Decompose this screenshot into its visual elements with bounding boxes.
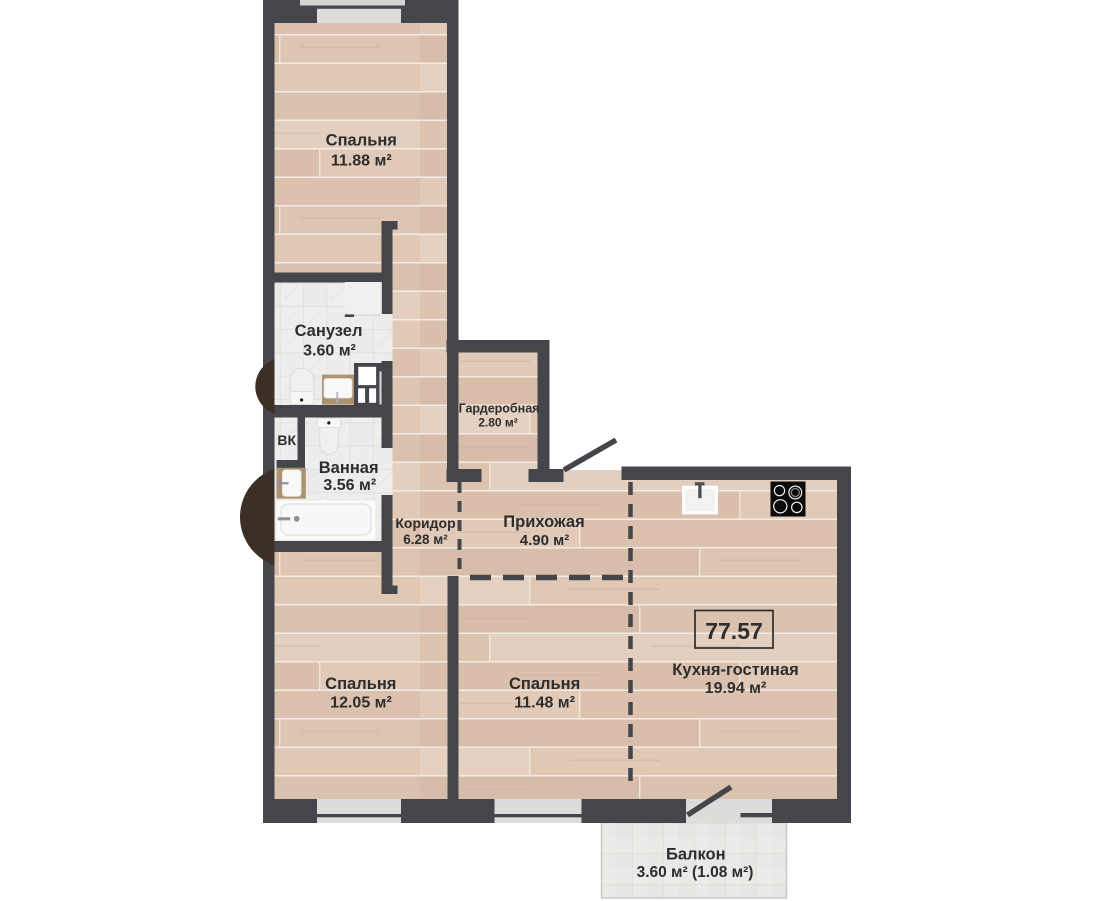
- svg-text:12.05 м²: 12.05 м²: [330, 694, 392, 711]
- svg-text:Спальня: Спальня: [325, 675, 396, 693]
- svg-text:11.48 м²: 11.48 м²: [514, 694, 575, 711]
- svg-text:ВК: ВК: [277, 432, 296, 448]
- svg-text:Санузел: Санузел: [295, 322, 363, 340]
- svg-text:19.94 м²: 19.94 м²: [705, 680, 767, 697]
- svg-text:3.56 м²: 3.56 м²: [323, 477, 376, 494]
- svg-text:3.60 м² (1.08 м²): 3.60 м² (1.08 м²): [637, 864, 754, 881]
- svg-text:Гардеробная: Гардеробная: [459, 402, 540, 416]
- svg-text:4.90 м²: 4.90 м²: [520, 532, 569, 549]
- svg-text:6.28 м²: 6.28 м²: [403, 532, 448, 547]
- svg-text:Коридор: Коридор: [395, 515, 455, 531]
- svg-text:Спальня: Спальня: [509, 675, 580, 693]
- svg-text:Кухня-гостиная: Кухня-гостиная: [672, 661, 798, 679]
- svg-text:77.57: 77.57: [705, 618, 763, 644]
- svg-text:Прихожая: Прихожая: [503, 513, 584, 531]
- svg-text:2.80 м²: 2.80 м²: [478, 416, 518, 430]
- svg-text:Спальня: Спальня: [326, 132, 397, 150]
- svg-text:11.88 м²: 11.88 м²: [331, 153, 392, 170]
- svg-text:Балкон: Балкон: [666, 846, 726, 864]
- svg-text:Ванная: Ванная: [319, 459, 379, 477]
- svg-text:3.60 м²: 3.60 м²: [303, 343, 356, 360]
